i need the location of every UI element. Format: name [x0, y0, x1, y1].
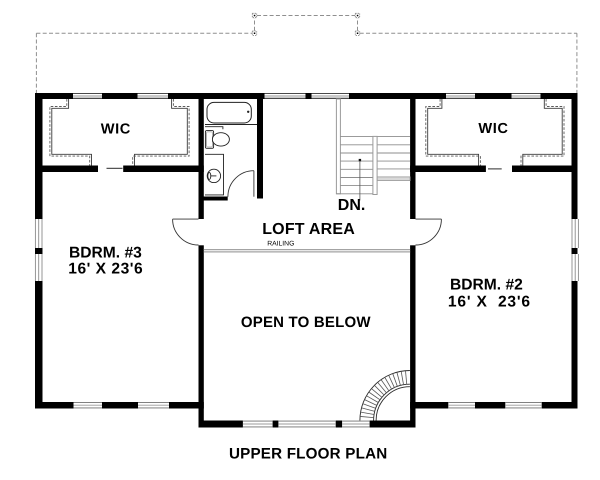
svg-text:BDRM. #2: BDRM. #2 — [450, 277, 523, 294]
svg-text:WIC: WIC — [101, 121, 131, 137]
svg-text:BDRM. #3: BDRM. #3 — [69, 245, 142, 262]
svg-text:16' X 23'6: 16' X 23'6 — [68, 261, 143, 278]
svg-text:WIC: WIC — [478, 121, 508, 137]
svg-text:16' X 23'6: 16' X 23'6 — [448, 293, 531, 310]
svg-text:RAILING: RAILING — [267, 241, 294, 248]
svg-text:OPEN TO BELOW: OPEN TO BELOW — [241, 314, 371, 331]
svg-text:DN.: DN. — [338, 197, 366, 214]
svg-text:LOFT AREA: LOFT AREA — [262, 221, 355, 238]
svg-text:UPPER FLOOR PLAN: UPPER FLOOR PLAN — [229, 446, 387, 463]
